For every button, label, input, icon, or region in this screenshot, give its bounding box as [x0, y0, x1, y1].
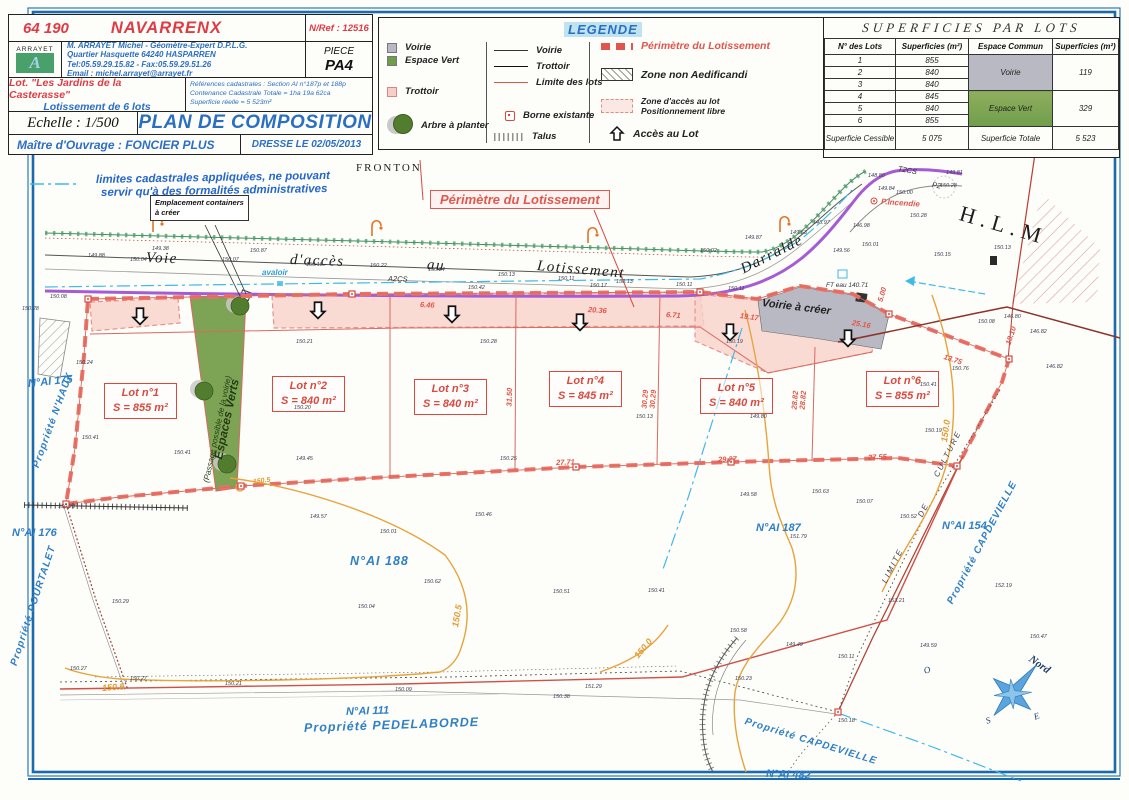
- legend-label: Voirie: [405, 42, 431, 53]
- legend-item-limite-lots: Limite des lots: [494, 77, 603, 88]
- lot-area: 840: [896, 67, 969, 79]
- voirie-line-icon: [494, 50, 528, 51]
- lot-area: 855: [896, 55, 969, 67]
- legend-item-acces-lot: Accès au Lot: [609, 126, 698, 142]
- superficies-table: N° des Lots Superficies (m²) Espace Comm…: [824, 38, 1119, 150]
- legend-item-zone-non-aedificandi: Zone non Aedificandi: [601, 68, 747, 81]
- table-row: 1 855 Voirie 119: [825, 55, 1119, 67]
- legend-label: Borne existante: [523, 110, 594, 121]
- lot-name-cell: Lot. "Les Jardins de la Casterasse" Loti…: [9, 78, 186, 111]
- col-header: Espace Commun: [969, 39, 1053, 55]
- legend-item-voirie-line: Voirie: [494, 45, 562, 56]
- legend-item-arbre: Arbre à planter: [387, 113, 489, 137]
- scale-label: Echelle : 1/500: [9, 112, 138, 134]
- voirie-common-value: 119: [1053, 55, 1119, 91]
- totale-label: Superficie Totale: [969, 127, 1053, 150]
- lot-area: 845: [896, 91, 969, 103]
- legend-label: Trottoir: [405, 86, 439, 97]
- espace-vert-common-cell: Espace Vert: [969, 91, 1053, 127]
- surveyor-address: M. ARRAYET Michel - Géomètre-Expert D.P.…: [62, 41, 305, 79]
- lotissement-name: Lot. "Les Jardins de la Casterasse": [9, 77, 185, 101]
- trottoir-swatch-icon: [387, 87, 397, 97]
- cadastre-line: Contenance Cadastrale Totale = 1ha 19a 6…: [190, 90, 368, 99]
- legend-item-trottoir-surface: Trottoir: [387, 86, 439, 97]
- containers-note-line2: à créer: [155, 208, 244, 218]
- legend-label: Espace Vert: [405, 55, 459, 66]
- containers-note-line1: Emplacement containers: [155, 198, 244, 208]
- containers-note: Emplacement containers à créer: [150, 195, 249, 221]
- superficies-title: SUPERFICIES PAR LOTS: [823, 18, 1120, 38]
- surveyor-line: M. ARRAYET Michel - Géomètre-Expert D.P.…: [67, 41, 305, 50]
- legend-item-borne: Borne existante: [505, 110, 594, 121]
- legend-item-talus: Talus: [494, 131, 556, 142]
- voirie-common-cell: Voirie: [969, 55, 1053, 91]
- document-title: PLAN DE COMPOSITION: [138, 112, 372, 134]
- limite-lots-line-icon: [494, 82, 528, 83]
- piece-box: PIECE PA4: [305, 42, 372, 77]
- legend-box: LEGENDE Voirie Espace Vert Trottoir Arbr…: [378, 17, 827, 150]
- date-label: DRESSE LE 02/05/2013: [240, 135, 372, 154]
- voirie-swatch-icon: [387, 43, 397, 53]
- lot-area: 840: [896, 79, 969, 91]
- espace-vert-common-value: 329: [1053, 91, 1119, 127]
- lot-number: 5: [825, 103, 896, 115]
- legend-label: Voirie: [536, 45, 562, 56]
- lot-number: 4: [825, 91, 896, 103]
- piece-value: PA4: [325, 57, 353, 74]
- postal-code: 64 190: [23, 20, 69, 37]
- legend-label: Accès au Lot: [633, 128, 698, 140]
- legend-label: Limite des lots: [536, 77, 603, 88]
- totale-value: 5 523: [1053, 127, 1119, 150]
- talus-icon: [494, 133, 524, 141]
- compass-rose: [976, 649, 1056, 731]
- piece-label: PIECE: [324, 46, 354, 57]
- main-road-purple: [45, 170, 962, 297]
- reference-number: N/Ref : 12516: [305, 15, 372, 41]
- legend-label: Zone d'accès au lot: [641, 96, 725, 106]
- legend-label: Arbre à planter: [421, 120, 489, 131]
- zone-acces-icon: [601, 99, 633, 113]
- lot-number: 1: [825, 55, 896, 67]
- cadastre-line: Superficie réelle = 5 523m²: [190, 99, 368, 108]
- legend-label: Positionnement libre: [641, 106, 725, 116]
- contour-lines: [65, 295, 954, 772]
- commune-name: NAVARRENX: [111, 19, 222, 38]
- cessible-value: 5 075: [896, 127, 969, 150]
- legend-item-voirie-surface: Voirie: [387, 42, 431, 53]
- espace-vert-swatch-icon: [387, 56, 397, 66]
- table-row: 4 845 Espace Vert 329: [825, 91, 1119, 103]
- lot-number: 6: [825, 115, 896, 127]
- legend-label: Talus: [532, 131, 556, 142]
- title-row-doctitle: Echelle : 1/500 PLAN DE COMPOSITION: [9, 111, 372, 134]
- lot-area: 840: [896, 103, 969, 115]
- legend-item-zone-acces: Zone d'accès au lot Positionnement libre: [601, 96, 725, 116]
- acces-lot-arrow-icon: [609, 126, 625, 142]
- plan-sheet: FRONTONlimites cadastrales appliquées, n…: [0, 0, 1129, 800]
- surveyor-line: Quartier Hasquette 64240 HASPARREN: [67, 50, 305, 59]
- client-label: Maître d'Ouvrage : FONCIER PLUS: [9, 138, 240, 152]
- logo-text: ARRAYET: [16, 46, 53, 53]
- legend-item-espace-vert: Espace Vert: [387, 55, 459, 66]
- legend-label: Trottoir: [536, 61, 570, 72]
- col-header: Superficies (m²): [896, 39, 969, 55]
- legend-label: Périmètre du Lotissement: [641, 40, 770, 52]
- legend-item-trottoir-line: Trottoir: [494, 61, 570, 72]
- legend-title: LEGENDE: [564, 22, 642, 37]
- logo-monogram-icon: A: [16, 53, 54, 73]
- lotissement-subtitle: Lotissement de 6 lots: [43, 101, 150, 113]
- perimetre-boxed-label: Périmètre du Lotissement: [430, 190, 610, 209]
- title-row-lot: Lot. "Les Jardins de la Casterasse" Loti…: [9, 77, 372, 111]
- lot-area: 855: [896, 115, 969, 127]
- zone-non-aedificandi-icon: [601, 68, 633, 81]
- cessible-label: Superficie Cessible: [825, 127, 896, 150]
- title-row-client: Maître d'Ouvrage : FONCIER PLUS DRESSE L…: [9, 134, 372, 154]
- legend-item-perimetre: Périmètre du Lotissement: [601, 40, 770, 52]
- cadastre-line: Références cadastrales : Section AI n°18…: [190, 81, 368, 90]
- legend-divider: [589, 42, 590, 143]
- trottoir-line-icon: [494, 66, 528, 67]
- title-row-surveyor: ARRAYET A M. ARRAYET Michel - Géomètre-E…: [9, 41, 372, 77]
- lot-number: 2: [825, 67, 896, 79]
- misc-symbols: [277, 176, 997, 286]
- surveyor-line: Tel:05.59.29.15.82 - Fax:05.59.29.51.26: [67, 60, 305, 69]
- arrayet-logo: ARRAYET A: [9, 42, 62, 77]
- col-header: N° des Lots: [825, 39, 896, 55]
- superficies-panel: SUPERFICIES PAR LOTS N° des Lots Superfi…: [823, 17, 1120, 158]
- title-block: 64 190 NAVARRENX N/Ref : 12516 ARRAYET A…: [8, 14, 373, 155]
- tree-icon: [387, 113, 413, 137]
- borne-icon: [505, 111, 515, 121]
- talus-lines: [24, 505, 746, 772]
- perimetre-dashed-icon: [601, 43, 633, 50]
- legend-label: Zone non Aedificandi: [641, 69, 747, 81]
- col-header: Superficies (m²): [1053, 39, 1119, 55]
- lot-number: 3: [825, 79, 896, 91]
- table-footer-row: Superficie Cessible 5 075 Superficie Tot…: [825, 127, 1119, 150]
- title-row-commune: 64 190 NAVARRENX N/Ref : 12516: [9, 15, 372, 41]
- cadastre-references: Références cadastrales : Section AI n°18…: [186, 79, 372, 109]
